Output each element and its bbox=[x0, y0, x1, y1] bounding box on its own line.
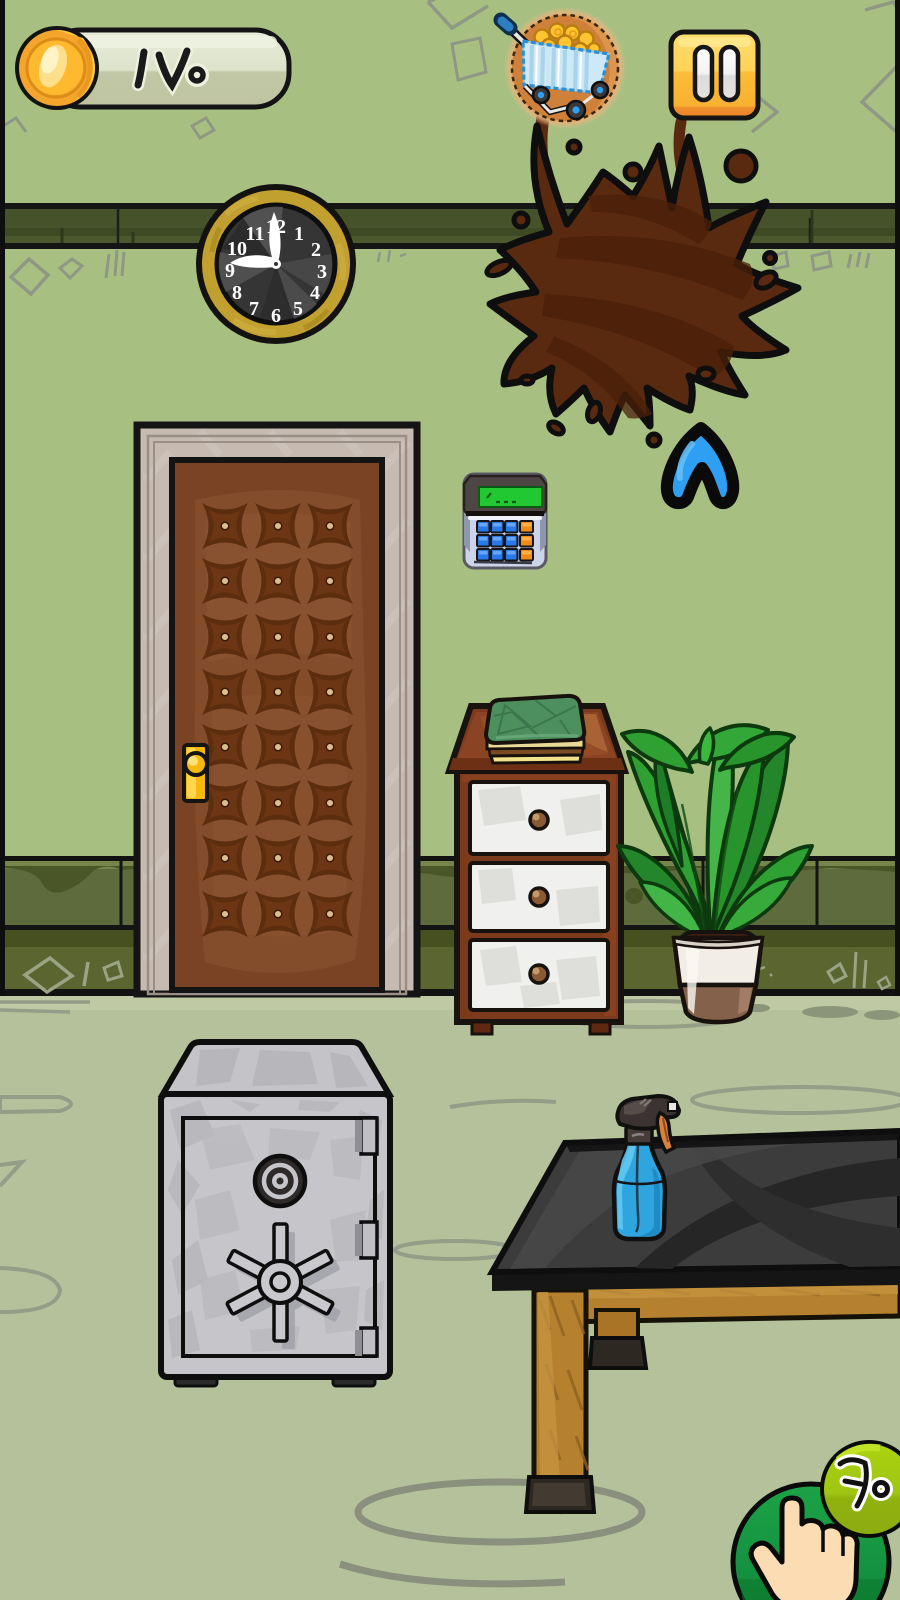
svg-text:1: 1 bbox=[294, 223, 304, 245]
svg-text:7: 7 bbox=[249, 298, 259, 320]
svg-text:2: 2 bbox=[311, 239, 321, 261]
svg-text:11: 11 bbox=[246, 223, 265, 245]
svg-text:8: 8 bbox=[232, 282, 242, 304]
svg-text:4: 4 bbox=[310, 282, 320, 304]
svg-text:3: 3 bbox=[317, 261, 327, 283]
svg-text:6: 6 bbox=[271, 305, 281, 327]
svg-text:5: 5 bbox=[293, 298, 303, 320]
